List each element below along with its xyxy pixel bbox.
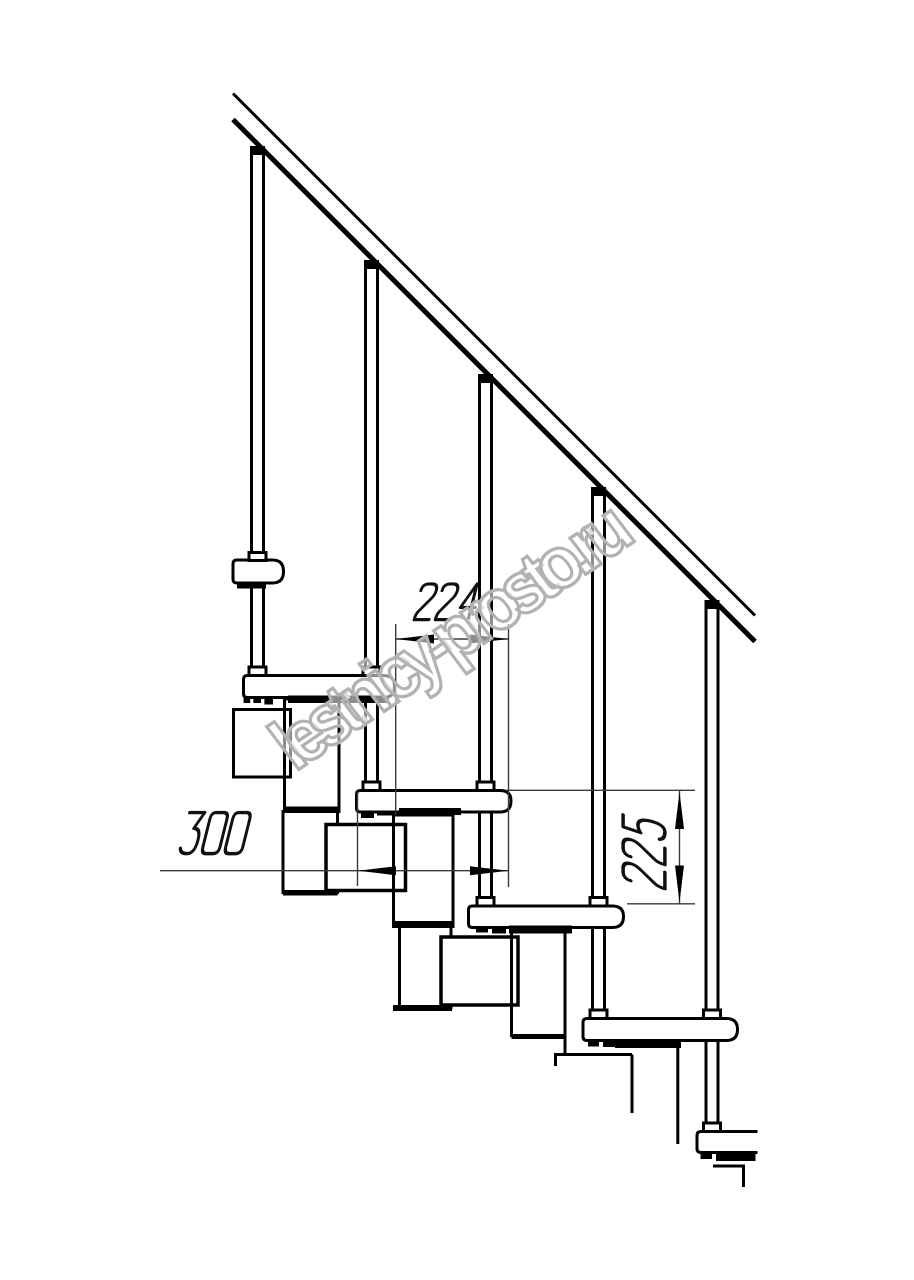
svg-text:lestnicy-prosto.ru: lestnicy-prosto.ru	[255, 487, 648, 786]
